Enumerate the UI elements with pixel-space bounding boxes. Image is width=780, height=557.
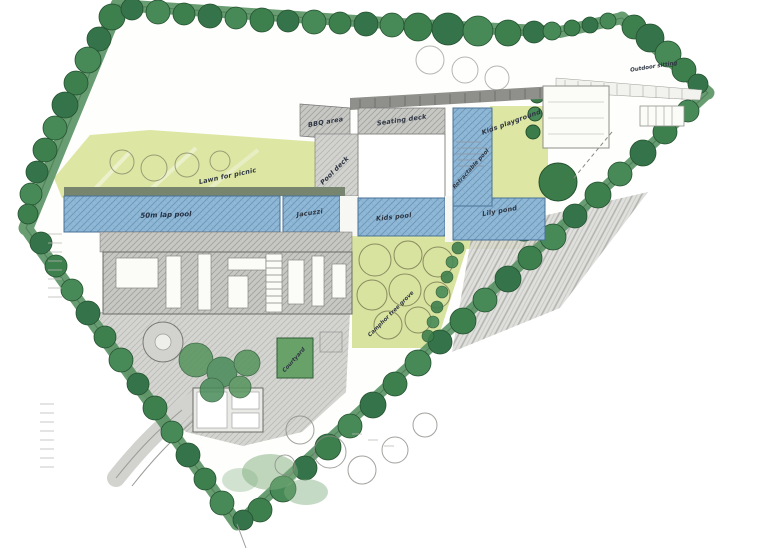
lap-pool-edge [64,187,345,196]
roundabout [143,322,183,362]
site-plan-canvas: BBQ area Seating deck Kids playground Po… [0,0,780,557]
south-deck-band [100,232,352,252]
small-terrace [320,332,342,352]
site-plan-drawing: BBQ area Seating deck Kids playground Po… [0,0,780,557]
pavilion-building [358,134,445,198]
entry-platform [543,86,609,148]
walk-strip-1 [340,196,358,236]
walk-strip-2 [445,196,453,242]
entry-steps [640,106,684,126]
building-compound [103,252,352,314]
